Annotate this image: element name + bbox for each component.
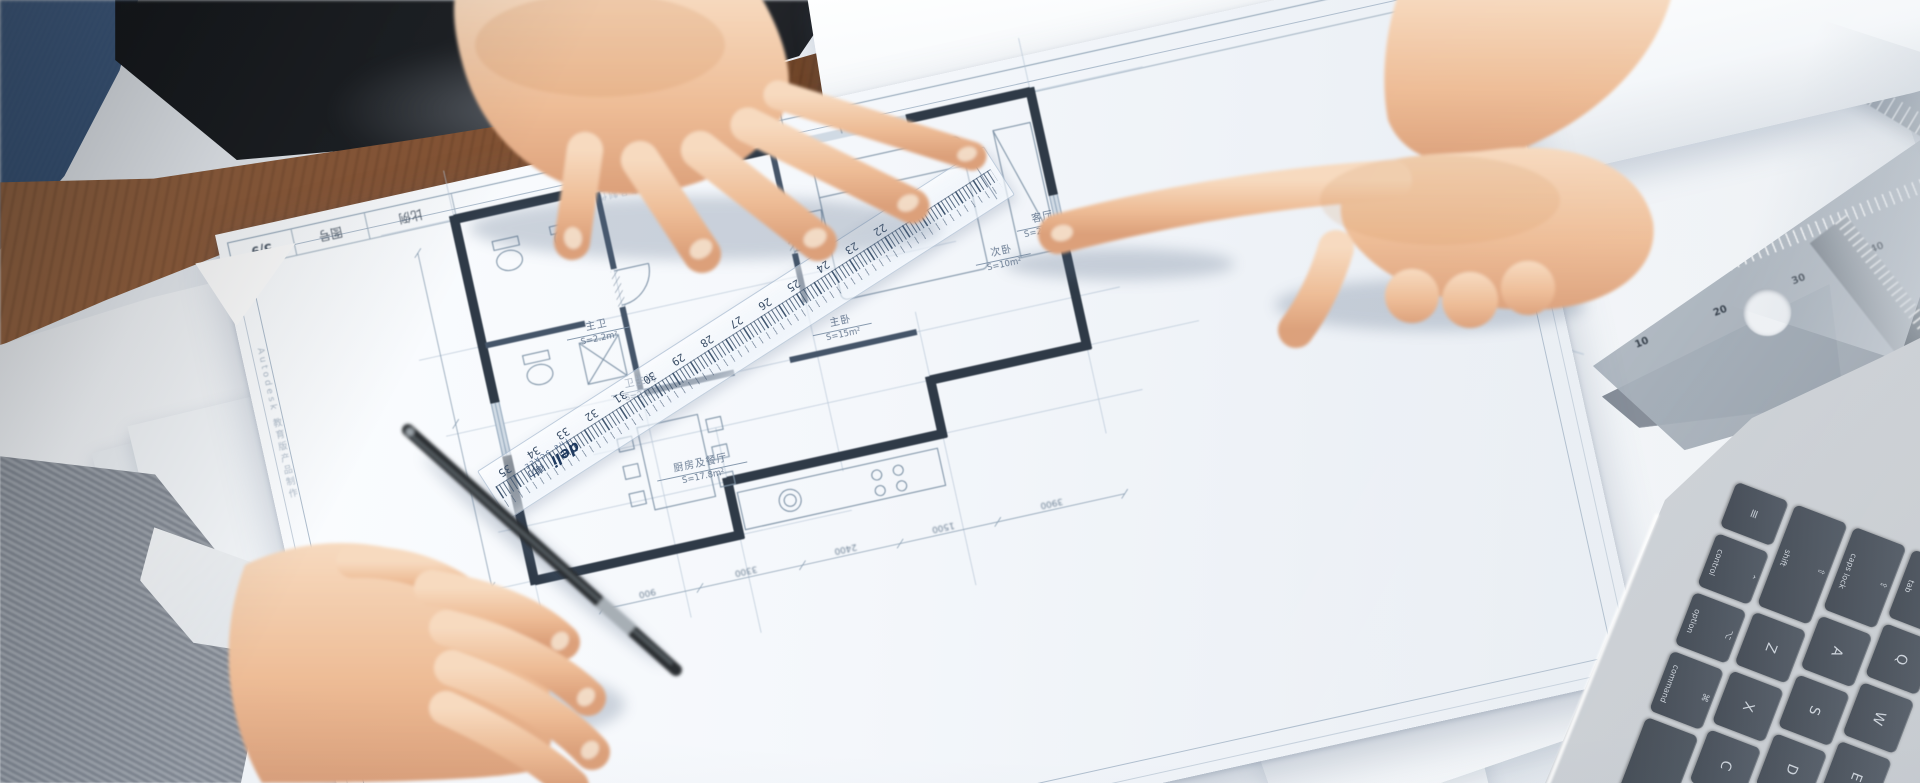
forearm [1384, 0, 1672, 163]
hands-layer [0, 0, 1920, 783]
hand-pointing [1049, 0, 1672, 330]
pen-tip [406, 428, 414, 436]
curled-finger [1385, 269, 1439, 323]
photo-architects-desk: 1020304050 1020304050 5/9 图号 比例 [0, 0, 1920, 783]
curled-finger [1501, 261, 1555, 315]
curled-finger [1442, 272, 1498, 328]
